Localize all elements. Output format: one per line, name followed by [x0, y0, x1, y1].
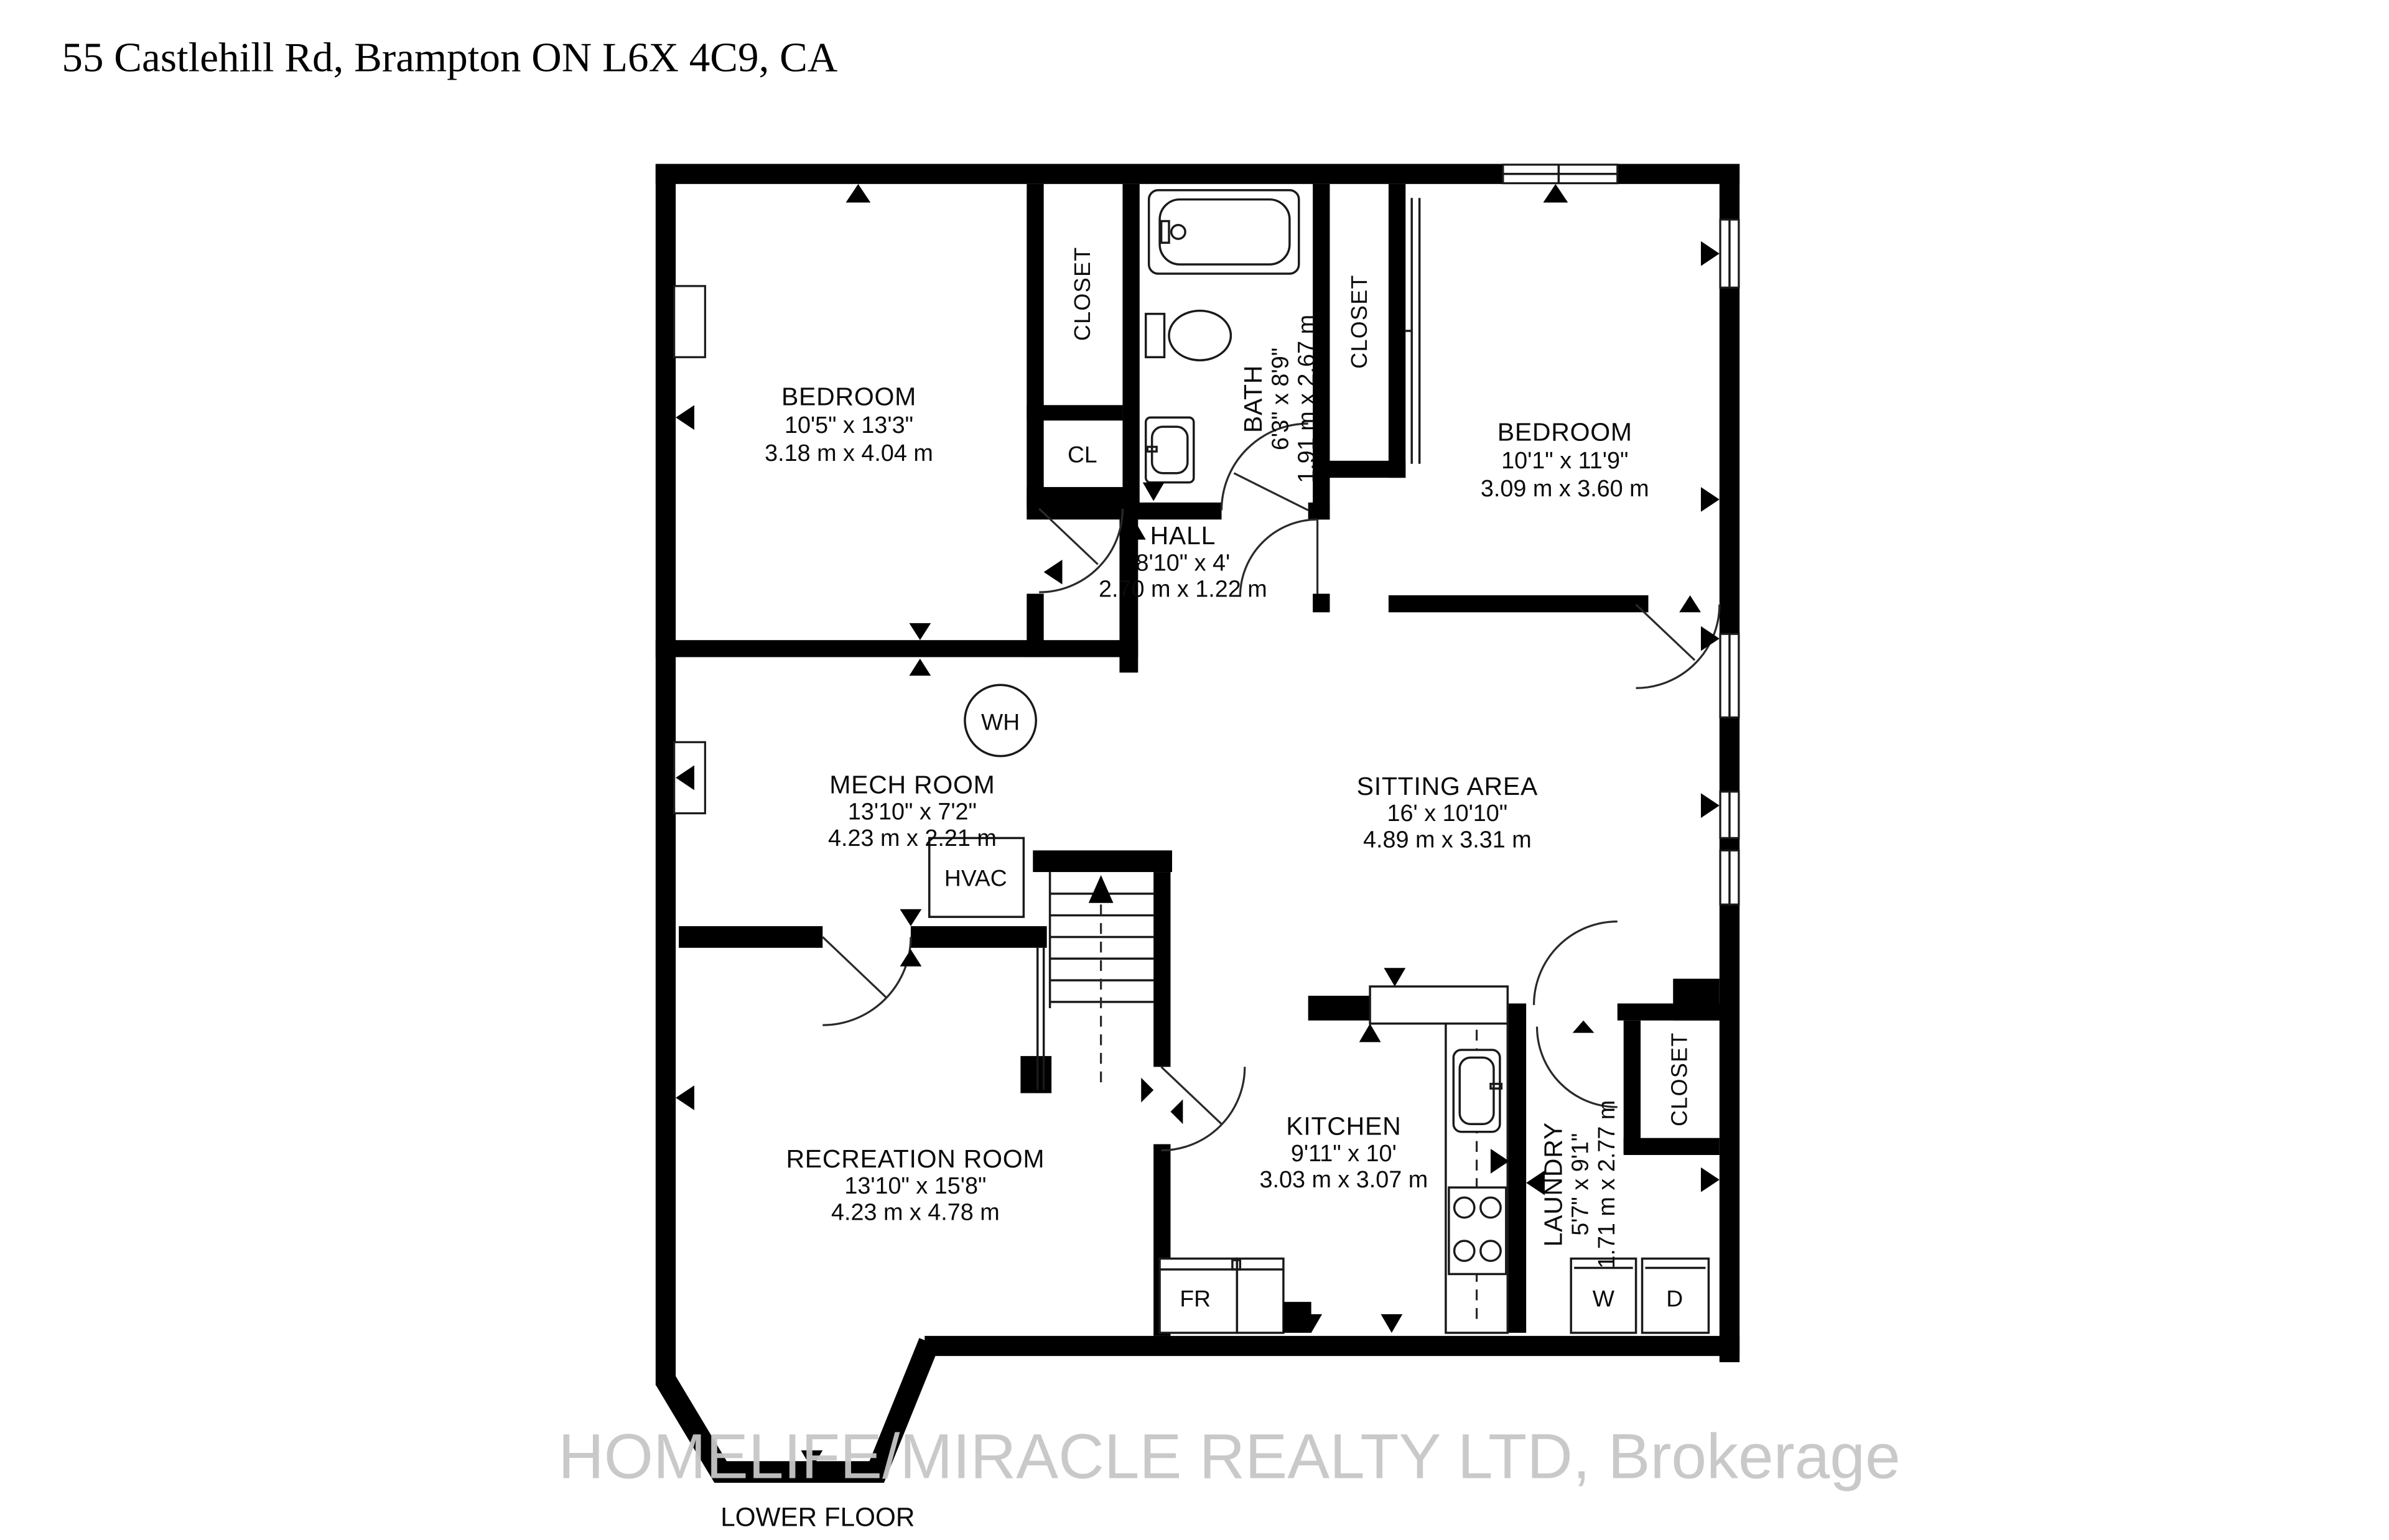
hvac-label: HVAC	[944, 865, 1007, 891]
room-label-bath: BATH 6'3" x 8'9" 1.91 m x 2.67 m	[1239, 315, 1320, 483]
window-bedroom-right-top-icon	[1503, 165, 1618, 183]
bedroom-left-imperial: 10'5" x 13'3"	[785, 412, 913, 438]
sitting-name: SITTING AREA	[1357, 772, 1538, 800]
stairs	[1038, 872, 1153, 1090]
stairs-up-arrow-icon	[1089, 875, 1114, 903]
floorplan-page: 55 Castlehill Rd, Brampton ON L6X 4C9, C…	[0, 0, 2389, 1540]
bedroom-right-metric: 3.09 m x 3.60 m	[1481, 476, 1649, 502]
bedroom-right-imperial: 10'1" x 11'9"	[1501, 448, 1628, 474]
room-label-sitting: SITTING AREA 16' x 10'10" 4.89 m x 3.31 …	[1357, 772, 1538, 853]
window-bedroom-left-icon	[674, 286, 706, 357]
brokerage-watermark: HOMELIFE/MIRACLE REALTY LTD, Brokerage	[558, 1421, 1900, 1492]
bedroom-left-metric: 3.18 m x 4.04 m	[765, 440, 933, 466]
stove-icon	[1449, 1187, 1506, 1274]
mech-name: MECH ROOM	[829, 770, 995, 799]
water-heater-label: WH	[981, 708, 1020, 735]
kitchen-peninsula	[1370, 986, 1507, 1024]
recreation-imperial: 13'10" x 15'8"	[844, 1173, 986, 1199]
door-arc-laundry	[1534, 922, 1618, 1107]
recreation-name: RECREATION ROOM	[786, 1144, 1045, 1173]
fridge-label: FR	[1180, 1286, 1211, 1312]
room-label-kitchen: KITCHEN 9'11" x 10' 3.03 m x 3.07 m	[1259, 1112, 1428, 1194]
bathtub-icon	[1149, 190, 1299, 274]
sitting-metric: 4.89 m x 3.31 m	[1363, 827, 1532, 853]
closet-upper-label: CLOSET	[1069, 247, 1095, 341]
hall-name: HALL	[1150, 521, 1216, 550]
room-label-laundry: LAUNDRY 5'7" x 9'1" 1.71 m x 2.77 m	[1539, 1100, 1620, 1269]
laundry-imperial: 5'7" x 9'1"	[1568, 1133, 1594, 1236]
sitting-imperial: 16' x 10'10"	[1387, 800, 1508, 827]
door-arc-mech	[822, 937, 911, 1025]
cl-label: CL	[1068, 441, 1097, 467]
bedroom-left-name: BEDROOM	[781, 382, 916, 411]
mech-metric: 4.23 m x 2.21 m	[828, 825, 997, 851]
room-label-bedroom-left: BEDROOM 10'5" x 13'3" 3.18 m x 4.04 m	[765, 382, 933, 466]
room-label-bedroom-right: BEDROOM 10'1" x 11'9" 3.09 m x 3.60 m	[1481, 417, 1649, 501]
floor-plan-svg: 55 Castlehill Rd, Brampton ON L6X 4C9, C…	[0, 0, 2389, 1540]
kitchen-metric: 3.03 m x 3.07 m	[1259, 1167, 1428, 1193]
hall-imperial: 8'10" x 4'	[1136, 550, 1231, 576]
laundry-name: LAUNDRY	[1539, 1122, 1567, 1246]
kitchen-imperial: 9'11" x 10'	[1291, 1141, 1397, 1167]
bath-metric: 1.91 m x 2.67 m	[1294, 315, 1320, 483]
kitchen-sink-icon	[1453, 1050, 1501, 1132]
bath-imperial: 6'3" x 8'9"	[1267, 348, 1293, 450]
washer-label: W	[1593, 1286, 1615, 1312]
kitchen-name: KITCHEN	[1286, 1112, 1401, 1141]
bath-sink-icon	[1146, 417, 1194, 482]
mech-imperial: 13'10" x 7'2"	[848, 799, 977, 825]
hall-metric: 2.70 m x 1.22 m	[1099, 577, 1267, 603]
closet-bedroom-label: CLOSET	[1346, 274, 1372, 369]
bedroom-right-name: BEDROOM	[1497, 417, 1632, 446]
laundry-metric: 1.71 m x 2.77 m	[1594, 1100, 1620, 1269]
recreation-metric: 4.23 m x 4.78 m	[831, 1199, 1000, 1225]
room-label-mech: MECH ROOM 13'10" x 7'2" 4.23 m x 2.21 m	[828, 770, 997, 851]
window-right-wall-top-icon	[1720, 220, 1739, 287]
bath-name: BATH	[1239, 365, 1267, 433]
page-title: 55 Castlehill Rd, Brampton ON L6X 4C9, C…	[62, 34, 837, 80]
closet-laundry-label: CLOSET	[1667, 1032, 1692, 1126]
sliding-closet-door-icon	[1405, 198, 1419, 464]
dryer-label: D	[1666, 1286, 1683, 1312]
floor-label: LOWER FLOOR	[720, 1503, 915, 1532]
window-sitting-1-icon	[1720, 634, 1739, 717]
toilet-icon	[1146, 311, 1231, 361]
room-label-recreation: RECREATION ROOM 13'10" x 15'8" 4.23 m x …	[786, 1144, 1045, 1226]
